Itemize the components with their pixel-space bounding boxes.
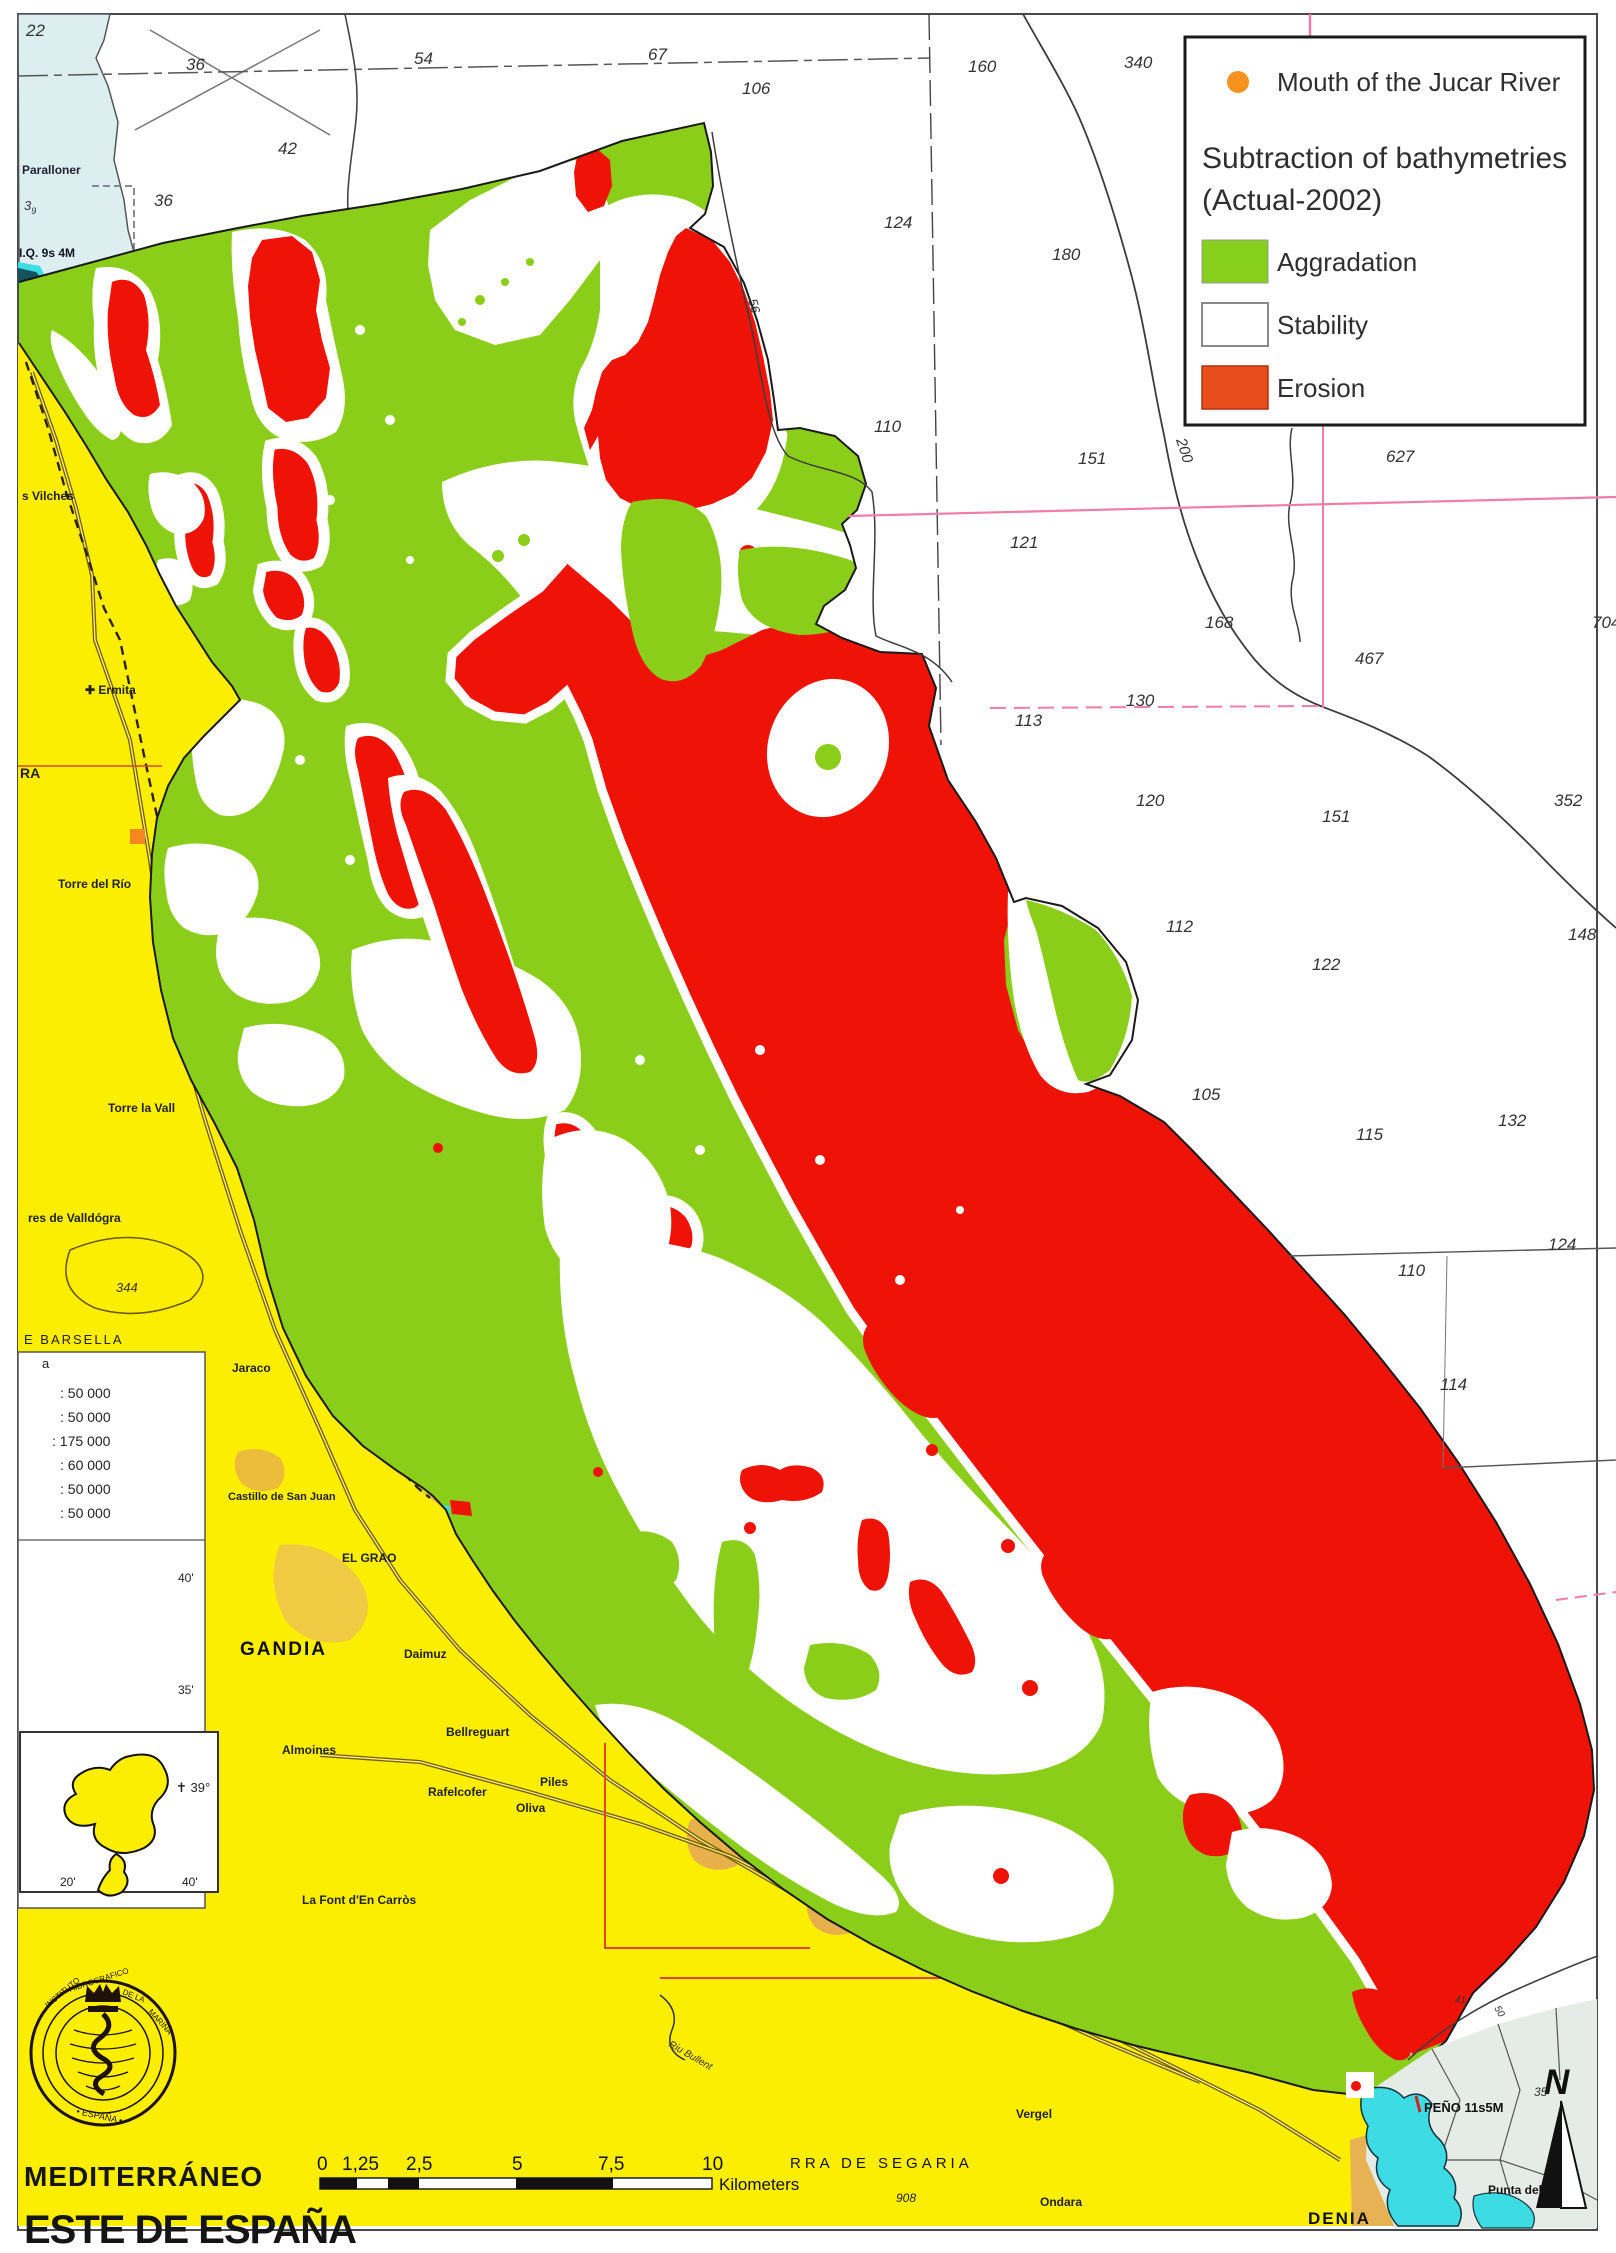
svg-text:114: 114 <box>1440 1375 1467 1394</box>
svg-text:I.Q. 9s 4M: I.Q. 9s 4M <box>19 246 75 260</box>
svg-text:54: 54 <box>414 49 433 68</box>
svg-text:110: 110 <box>874 417 902 436</box>
svg-text:: 175 000: : 175 000 <box>52 1433 111 1449</box>
svg-text:340: 340 <box>1124 53 1153 72</box>
svg-text:✝ 39°: ✝ 39° <box>176 1780 210 1795</box>
svg-text:✚ Ermita: ✚ Ermita <box>85 683 136 697</box>
svg-text:7,5: 7,5 <box>598 2154 624 2175</box>
svg-text:: 50 000: : 50 000 <box>60 1385 111 1401</box>
svg-text:Bellreguart: Bellreguart <box>446 1725 509 1739</box>
svg-text:105: 105 <box>1192 1085 1221 1104</box>
svg-text:Kilometers: Kilometers <box>719 2175 799 2194</box>
svg-text:10: 10 <box>702 2154 723 2175</box>
svg-text:122: 122 <box>1312 955 1341 974</box>
svg-text:20': 20' <box>60 1875 76 1889</box>
svg-text:132: 132 <box>1498 1111 1527 1130</box>
svg-text:1,25: 1,25 <box>342 2154 379 2175</box>
svg-text:67: 67 <box>648 45 667 64</box>
svg-text:: 50 000: : 50 000 <box>60 1505 111 1521</box>
svg-text:Erosion: Erosion <box>1277 373 1365 403</box>
svg-text:Vergel: Vergel <box>1016 2107 1052 2121</box>
svg-text:120: 120 <box>1136 791 1165 810</box>
svg-text:Stability: Stability <box>1277 310 1368 340</box>
svg-text:41: 41 <box>1455 1995 1466 2006</box>
svg-text:Jaraco: Jaraco <box>232 1361 271 1375</box>
svg-text:35': 35' <box>178 1683 194 1697</box>
svg-text:113: 113 <box>1015 711 1043 730</box>
svg-text:42: 42 <box>278 139 297 158</box>
svg-text:Mouth of the Jucar River: Mouth of the Jucar River <box>1277 67 1561 97</box>
svg-text:2,5: 2,5 <box>406 2154 432 2175</box>
svg-text:E BARSELLA: E BARSELLA <box>24 1332 124 1347</box>
svg-text:130: 130 <box>1126 691 1155 710</box>
svg-text:151: 151 <box>1078 449 1106 468</box>
svg-text:Oliva: Oliva <box>516 1801 546 1815</box>
svg-text:Piles: Piles <box>540 1775 568 1789</box>
svg-text:344: 344 <box>116 1280 138 1295</box>
svg-text:36: 36 <box>186 55 205 74</box>
svg-text:22: 22 <box>25 21 45 40</box>
svg-text:40': 40' <box>182 1875 198 1889</box>
svg-text:s Vilches: s Vilches <box>22 489 74 503</box>
svg-text:Ondara: Ondara <box>1040 2195 1082 2209</box>
svg-text:168: 168 <box>1205 613 1234 632</box>
svg-text:: 50 000: : 50 000 <box>60 1481 111 1497</box>
svg-text:Subtraction of bathymetries: Subtraction of bathymetries <box>1202 142 1567 175</box>
svg-text:151: 151 <box>1322 807 1350 826</box>
svg-text:PEÑO 11s5M: PEÑO 11s5M <box>1424 2100 1504 2115</box>
svg-text:180: 180 <box>1052 245 1081 264</box>
svg-text:352: 352 <box>1554 791 1583 810</box>
svg-text:40': 40' <box>178 1571 194 1585</box>
svg-text:148: 148 <box>1568 925 1597 944</box>
svg-text:GANDIA: GANDIA <box>240 1639 327 1660</box>
svg-text:115: 115 <box>1356 1125 1384 1144</box>
svg-text:Almoines: Almoines <box>282 1743 336 1757</box>
svg-text:MEDITERRÁNEO: MEDITERRÁNEO <box>24 2161 263 2192</box>
svg-text:La Font d'En Carròs: La Font d'En Carròs <box>302 1893 417 1907</box>
svg-text:res de Valldógra: res de Valldógra <box>28 1211 121 1225</box>
svg-text:: 50 000: : 50 000 <box>60 1409 111 1425</box>
svg-text:467: 467 <box>1355 649 1384 668</box>
svg-text:EL GRAO: EL GRAO <box>342 1551 396 1565</box>
svg-text:704: 704 <box>1592 613 1616 632</box>
svg-text:Torre del Río: Torre del Río <box>58 877 131 891</box>
svg-text:Torre la Vall: Torre la Vall <box>108 1101 175 1115</box>
svg-text:N: N <box>1544 2063 1570 2102</box>
svg-text:Paralloner: Paralloner <box>22 163 81 177</box>
svg-text:35: 35 <box>1534 2085 1548 2099</box>
svg-text:124: 124 <box>884 213 912 232</box>
svg-text:Castillo de San Juan: Castillo de San Juan <box>228 1491 336 1503</box>
svg-text:Daimuz: Daimuz <box>404 1647 447 1661</box>
svg-text:36: 36 <box>154 191 173 210</box>
svg-text:ESTE DE ESPAÑA: ESTE DE ESPAÑA <box>24 2206 356 2252</box>
svg-text:908: 908 <box>896 2191 916 2205</box>
svg-text:5: 5 <box>512 2154 523 2175</box>
svg-text:RA: RA <box>20 765 40 781</box>
svg-text:112: 112 <box>1166 917 1194 936</box>
svg-text:160: 160 <box>968 57 997 76</box>
svg-text:121: 121 <box>1010 533 1038 552</box>
svg-text:: 60 000: : 60 000 <box>60 1457 111 1473</box>
svg-text:(Actual-2002): (Actual-2002) <box>1202 184 1382 217</box>
svg-text:627: 627 <box>1386 447 1415 466</box>
svg-text:Rafelcofer: Rafelcofer <box>428 1785 487 1799</box>
svg-text:RRA DE SEGARIA: RRA DE SEGARIA <box>790 2155 973 2172</box>
svg-text:DENIA: DENIA <box>1308 2209 1371 2228</box>
svg-text:Aggradation: Aggradation <box>1277 247 1417 277</box>
svg-text:a: a <box>42 1356 50 1371</box>
svg-text:124: 124 <box>1548 1235 1576 1254</box>
svg-text:0: 0 <box>317 2154 328 2175</box>
svg-text:110: 110 <box>1398 1261 1426 1280</box>
svg-text:106: 106 <box>742 79 771 98</box>
